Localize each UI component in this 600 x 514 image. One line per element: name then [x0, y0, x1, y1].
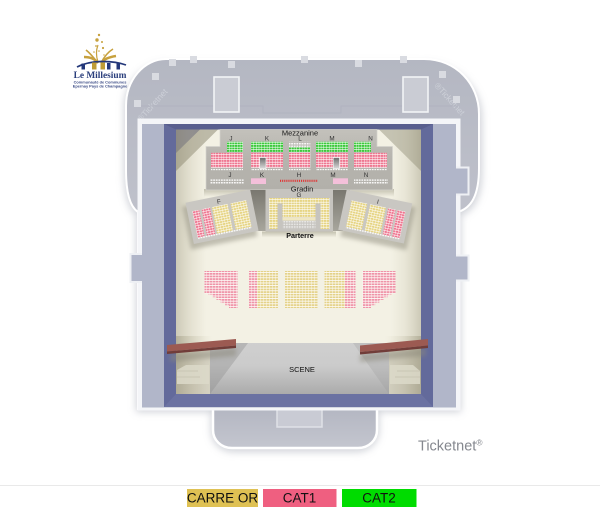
svg-text:CAT2: CAT2 [362, 491, 396, 506]
svg-text:M: M [329, 136, 334, 143]
svg-text:N: N [368, 136, 373, 143]
svg-text:G: G [297, 192, 302, 199]
svg-text:N: N [364, 172, 369, 179]
svg-text:SCENE: SCENE [289, 365, 315, 374]
svg-text:J: J [229, 136, 232, 143]
svg-text:Epernay Pays de Champagne: Epernay Pays de Champagne [73, 84, 128, 89]
svg-text:Parterre: Parterre [286, 231, 314, 240]
svg-text:Ticketnet®: Ticketnet® [418, 438, 483, 455]
svg-text:H: H [297, 172, 302, 179]
svg-text:J: J [228, 172, 231, 179]
svg-text:M: M [330, 172, 335, 179]
svg-text:CARRE OR: CARRE OR [187, 491, 259, 506]
svg-text:L: L [298, 136, 302, 143]
svg-text:Gradin: Gradin [291, 185, 314, 194]
svg-text:CAT1: CAT1 [283, 491, 317, 506]
